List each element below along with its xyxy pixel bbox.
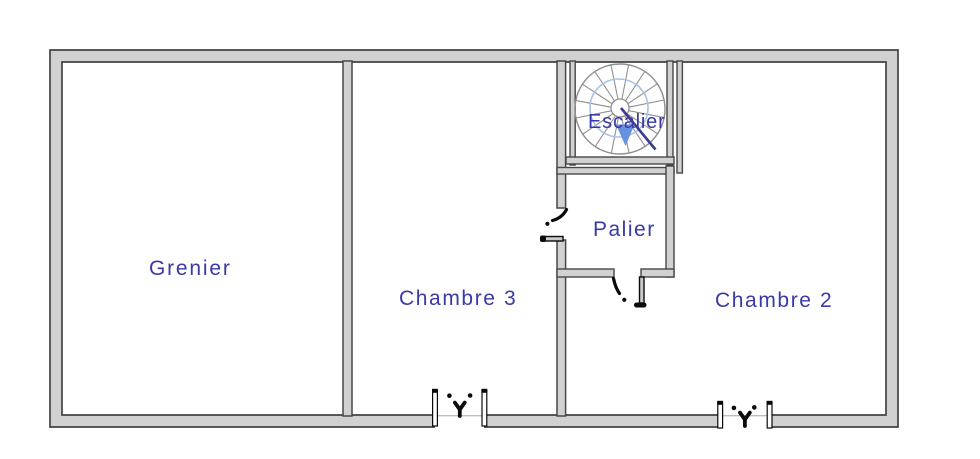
svg-text:Palier: Palier: [593, 218, 656, 241]
svg-text:Chambre 3: Chambre 3: [399, 287, 517, 310]
svg-text:Grenier: Grenier: [149, 257, 232, 280]
svg-text:Chambre 2: Chambre 2: [715, 289, 833, 312]
svg-text:Escalier: Escalier: [588, 111, 666, 133]
